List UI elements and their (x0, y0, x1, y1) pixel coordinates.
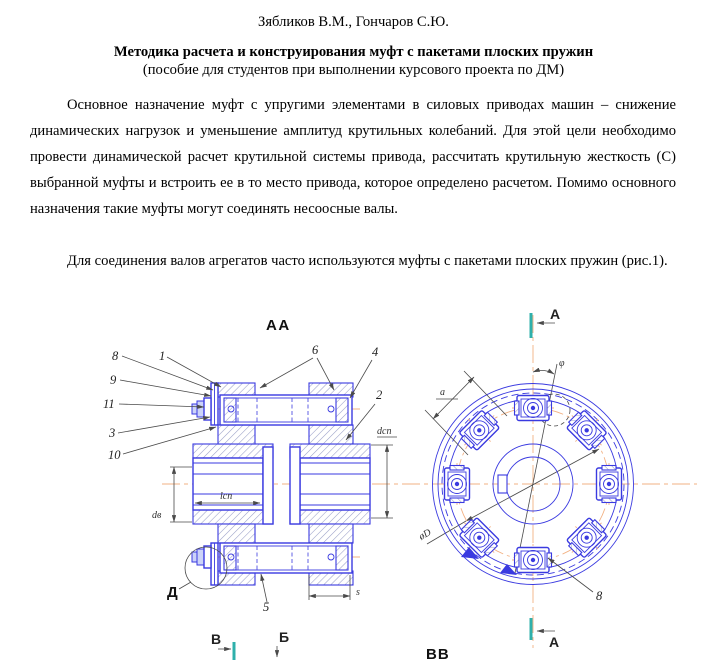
section-mark-b: Б (277, 629, 289, 657)
bolt-head (197, 401, 204, 417)
svg-text:В: В (211, 631, 221, 647)
left-view-label: АА (266, 317, 291, 334)
callout-11: 11 (103, 397, 115, 411)
detail-label: Д (167, 584, 178, 601)
callout-3: 3 (108, 426, 115, 440)
dim-dsp: dсп (377, 426, 391, 437)
svg-text:А: А (550, 306, 560, 322)
paragraph-figure-ref: Для соединения валов агрегатов часто исп… (30, 248, 676, 274)
authors-line: Зябликов В.М., Гончаров С.Ю. (0, 14, 707, 31)
right-view-front: а φ øD 8 А А ВВ (416, 306, 633, 663)
right-view-label: ВВ (426, 646, 450, 663)
keyway (498, 475, 507, 493)
callout-10: 10 (108, 448, 121, 462)
callout-2: 2 (376, 388, 382, 402)
right-flange-disc (290, 447, 300, 524)
dim-dv: dв (152, 510, 162, 521)
dim-a: а (440, 387, 445, 398)
section-mark-a-bottom: А (530, 618, 560, 650)
section-mark-v: В (211, 631, 236, 660)
left-hub-body (193, 458, 263, 510)
svg-text:Б: Б (279, 629, 289, 645)
page-subtitle: (пособие для студентов при выполнении ку… (0, 62, 707, 79)
page-title: Методика расчета и конструирования муфт … (0, 44, 707, 61)
dim-lsp: lсп (220, 491, 232, 502)
dim-diameter: øD (416, 527, 434, 543)
right-hub-body (300, 458, 370, 510)
coupling-figure: АА 8 1 9 11 3 10 6 4 2 5 Д (0, 300, 707, 670)
callout-4: 4 (372, 345, 378, 359)
paragraph-main: Основное назначение муфт с упругими элем… (30, 92, 676, 222)
callout-8-right: 8 (596, 589, 603, 603)
bolt-tip (192, 404, 197, 414)
svg-text:А: А (549, 634, 559, 650)
callout-6: 6 (312, 343, 319, 357)
dim-s: s (356, 587, 360, 598)
section-mark-a-top: А (530, 306, 561, 338)
callout-5: 5 (263, 600, 269, 614)
callout-8: 8 (112, 349, 119, 363)
callout-9: 9 (110, 373, 117, 387)
dim-phi: φ (559, 358, 565, 369)
callout-1: 1 (159, 349, 165, 363)
left-flange-disc (263, 447, 273, 524)
